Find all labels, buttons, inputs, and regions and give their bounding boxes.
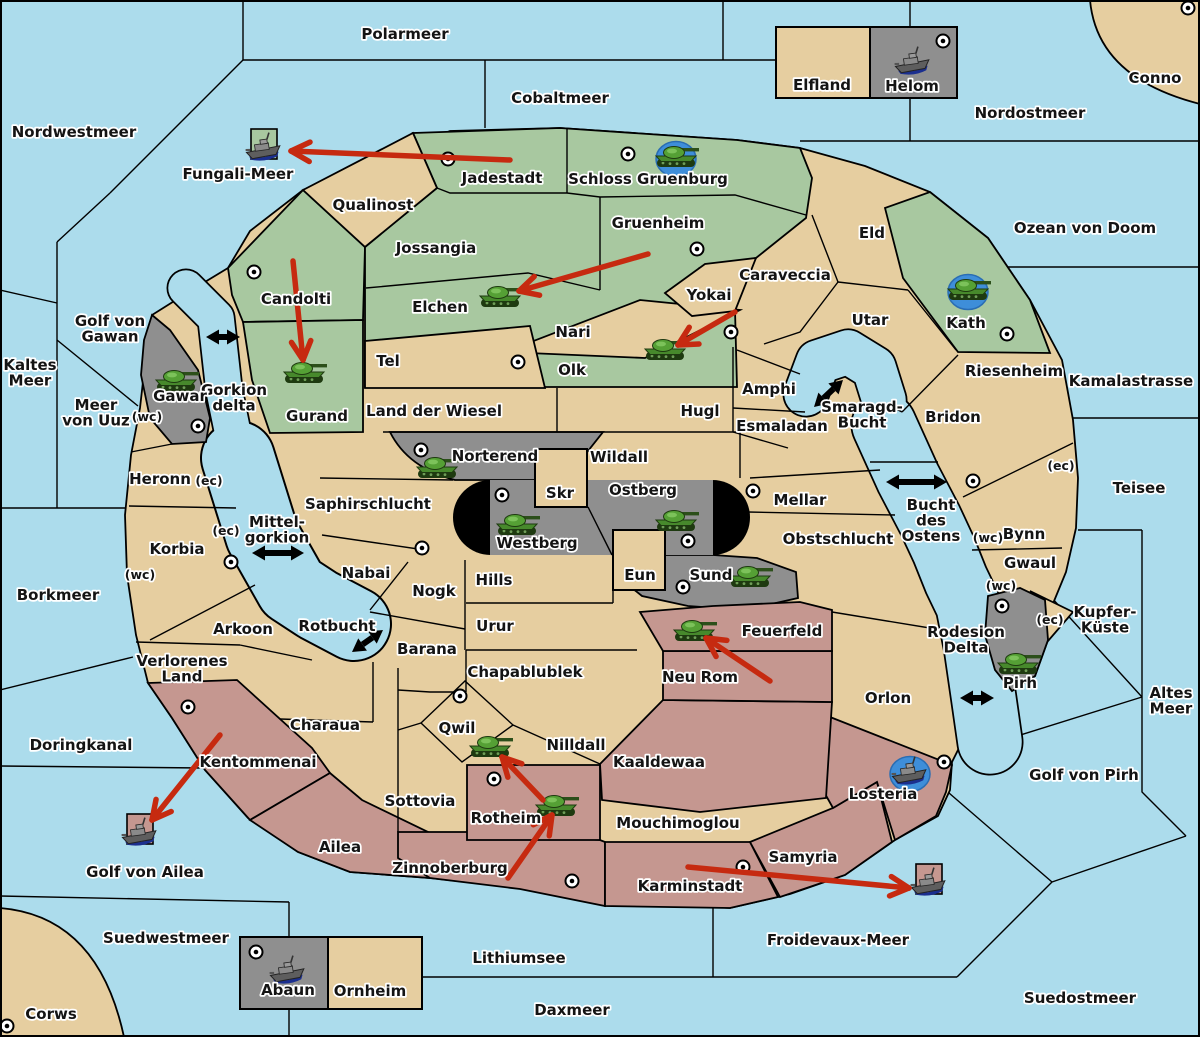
label-neu-rom: Neu Rom	[662, 668, 738, 686]
label-losteria: Losteria	[849, 785, 918, 803]
label-gwaul: Gwaul	[1004, 554, 1056, 572]
label-nordostmeer: Nordostmeer	[975, 104, 1086, 122]
label-mellar: Mellar	[774, 491, 828, 509]
supply-center-dot	[415, 444, 428, 457]
supply-center-dot	[1182, 2, 1195, 15]
game-map-stage: PolarmeerCobaltmeerNordwestmeerNordostme…	[0, 0, 1200, 1037]
supply-center-dot	[725, 326, 738, 339]
label-golf-von-ailea: Golf von Ailea	[86, 863, 204, 881]
label-ozean-von-doom: Ozean von Doom	[1014, 219, 1156, 237]
label-altes-meer: AltesMeer	[1149, 684, 1192, 718]
label-nilldall: Nilldall	[546, 736, 605, 754]
label-urur: Urur	[476, 617, 514, 635]
label-barana: Barana	[397, 640, 457, 658]
label-corws: Corws	[25, 1005, 77, 1023]
label-riesenheim: Riesenheim	[965, 362, 1063, 380]
label-heronn: Heronn	[129, 470, 191, 488]
label-norterend: Norterend	[452, 447, 539, 465]
supply-center-dot	[248, 266, 261, 279]
label-ostberg: Ostberg	[609, 481, 677, 499]
label-utar: Utar	[852, 311, 889, 329]
label-cobaltmeer: Cobaltmeer	[511, 89, 609, 107]
label-nari: Nari	[555, 323, 590, 341]
label-elfland: Elfland	[793, 76, 851, 94]
label-kupfer-kueste: Kupfer-Küste	[1073, 603, 1136, 637]
label-korbia-ec: (ec)	[212, 523, 239, 538]
label-ornheim: Ornheim	[334, 982, 406, 1000]
label-daxmeer: Daxmeer	[534, 1001, 610, 1019]
supply-center-dot	[250, 946, 263, 959]
label-nordwestmeer: Nordwestmeer	[12, 123, 137, 141]
label-uuz-wc: (wc)	[132, 409, 162, 424]
label-kaltes-meer: KaltesMeer	[3, 356, 56, 390]
label-candolti: Candolti	[261, 290, 331, 308]
label-yokai: Yokai	[685, 286, 731, 304]
label-eun: Eun	[624, 566, 656, 584]
supply-center-dot	[996, 600, 1009, 613]
supply-center-dot	[691, 243, 704, 256]
supply-center-dot	[192, 420, 205, 433]
label-charaua: Charaua	[290, 716, 360, 734]
label-nabai: Nabai	[342, 564, 391, 582]
supply-center-dot	[938, 756, 951, 769]
label-korbia-wc: (wc)	[125, 567, 155, 582]
label-hugl: Hugl	[680, 402, 719, 420]
supply-center-dot	[682, 535, 695, 548]
label-tel: Tel	[376, 352, 400, 370]
label-froidevaux-meer: Froidevaux-Meer	[767, 931, 910, 949]
label-qualinost: Qualinost	[333, 196, 414, 214]
label-samyria: Samyria	[769, 848, 838, 866]
label-mouchimoglou: Mouchimoglou	[616, 814, 739, 832]
label-sund: Sund	[690, 566, 733, 584]
label-feuerfeld: Feuerfeld	[742, 622, 823, 640]
label-esmaladan: Esmaladan	[736, 417, 828, 435]
label-zinnoberburg: Zinnoberburg	[392, 859, 508, 877]
label-lithiumsee: Lithiumsee	[472, 949, 565, 967]
supply-center-dot	[182, 701, 195, 714]
label-mittel-gorkion: Mittel-gorkion	[245, 513, 310, 547]
label-jadestadt: Jadestadt	[461, 169, 543, 187]
label-korbia: Korbia	[149, 540, 204, 558]
label-amphi: Amphi	[742, 380, 796, 398]
label-westberg: Westberg	[496, 534, 577, 552]
label-heronn-ec: (ec)	[195, 473, 222, 488]
label-sottovia: Sottovia	[385, 792, 456, 810]
supply-center-dot	[747, 485, 760, 498]
label-golf-von-gawan: Golf vonGawan	[75, 312, 145, 346]
label-teisee: Teisee	[1113, 479, 1166, 497]
supply-center-dot	[937, 35, 950, 48]
wargame-map[interactable]: PolarmeerCobaltmeerNordwestmeerNordostme…	[0, 0, 1200, 1037]
label-pirh: Pirh	[1003, 674, 1037, 692]
supply-center-dot	[225, 556, 238, 569]
label-kath: Kath	[946, 314, 986, 332]
label-obstschlucht: Obstschlucht	[783, 530, 894, 548]
label-gurand: Gurand	[286, 407, 348, 425]
label-gawar: Gawar	[153, 387, 207, 405]
label-hills: Hills	[476, 571, 513, 589]
label-kentommenai: Kentommenai	[199, 753, 316, 771]
supply-center-dot	[416, 542, 429, 555]
label-kamalastrasse: Kamalastrasse	[1069, 372, 1193, 390]
supply-center-dot	[566, 875, 579, 888]
label-eld: Eld	[859, 224, 885, 242]
supply-center-dot	[622, 148, 635, 161]
label-qwil: Qwil	[439, 719, 476, 737]
supply-center-dot	[496, 489, 509, 502]
label-polarmeer: Polarmeer	[361, 25, 449, 43]
label-nogk: Nogk	[412, 582, 457, 600]
label-skr: Skr	[546, 484, 575, 502]
label-ailea: Ailea	[319, 838, 361, 856]
label-bridon: Bridon	[925, 408, 981, 426]
label-saphirschlucht: Saphirschlucht	[305, 495, 431, 513]
label-wildall: Wildall	[590, 448, 648, 466]
label-conno: Conno	[1129, 69, 1182, 87]
territory-rotheim	[467, 765, 600, 840]
supply-center-dot	[967, 475, 980, 488]
label-jossangia: Jossangia	[395, 239, 477, 257]
label-karminstadt: Karminstadt	[638, 877, 743, 895]
label-bynn: Bynn	[1003, 525, 1046, 543]
supply-center-dot	[454, 690, 467, 703]
supply-center-dot	[1001, 328, 1014, 341]
supply-center-dot	[677, 581, 690, 594]
label-bynn-ec: (ec)	[1047, 458, 1074, 473]
supply-center-dot	[512, 356, 525, 369]
label-kaaldewaa: Kaaldewaa	[613, 753, 705, 771]
label-borkmeer: Borkmeer	[17, 586, 100, 604]
label-chapablublek: Chapablublek	[467, 663, 583, 681]
label-land-der-wiesel: Land der Wiesel	[366, 402, 502, 420]
label-olk: Olk	[558, 361, 587, 379]
label-golf-von-pirh: Golf von Pirh	[1029, 766, 1139, 784]
label-orlon: Orlon	[865, 689, 911, 707]
label-fungali-meer: Fungali-Meer	[183, 165, 294, 183]
label-suedostmeer: Suedostmeer	[1024, 989, 1137, 1007]
label-suedwestmeer: Suedwestmeer	[103, 929, 229, 947]
label-caraveccia: Caraveccia	[739, 266, 831, 284]
label-rotbucht: Rotbucht	[298, 617, 375, 635]
label-helom: Helom	[885, 77, 939, 95]
supply-center-dot	[488, 773, 501, 786]
label-abaun: Abaun	[261, 981, 315, 999]
label-arkoon: Arkoon	[213, 620, 273, 638]
label-doringkanal: Doringkanal	[30, 736, 133, 754]
label-gruenheim: Gruenheim	[612, 214, 705, 232]
label-gwaul-wc: (wc)	[986, 578, 1016, 593]
label-bynn-wc: (wc)	[973, 530, 1003, 545]
label-elchen: Elchen	[412, 298, 468, 316]
label-schloss-gruenburg: Schloss Gruenburg	[568, 170, 728, 188]
supply-center-dot	[1, 1020, 14, 1033]
label-rotheim: Rotheim	[471, 809, 542, 827]
label-pirh-ec: (ec)	[1036, 612, 1063, 627]
